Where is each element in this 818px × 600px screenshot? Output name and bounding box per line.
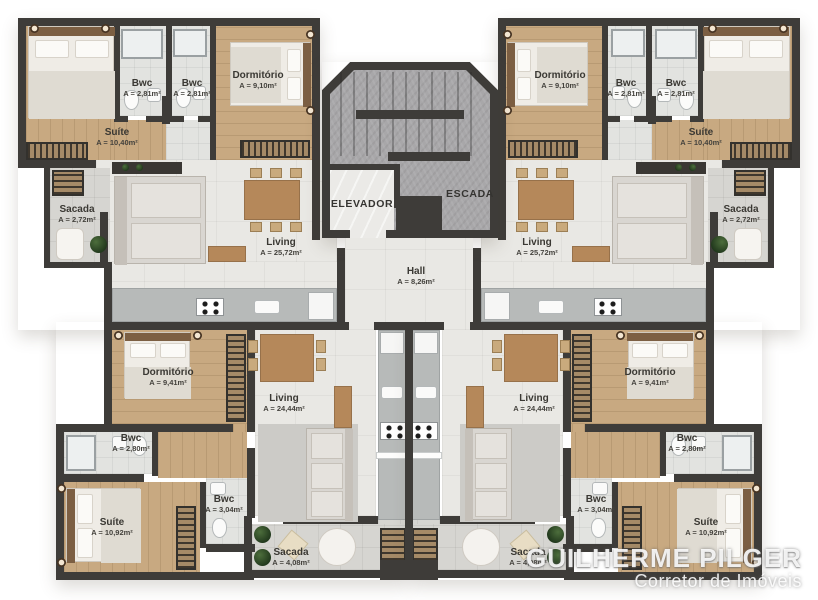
label-escada: ESCADA xyxy=(446,188,494,200)
planter-box xyxy=(380,560,438,580)
room-area: A = 2,80m² xyxy=(112,444,149,453)
watermark-line1: GUILHERME PILGER xyxy=(526,545,802,571)
console-table xyxy=(572,246,610,262)
wall xyxy=(706,262,714,330)
shower xyxy=(611,29,645,57)
wall xyxy=(563,322,571,432)
dining-chair xyxy=(556,222,568,232)
dining-table xyxy=(504,334,558,382)
room-area: A = 24,44m² xyxy=(263,404,305,413)
room-label-living: LivingA = 25,72m² xyxy=(260,237,302,257)
dining-chair xyxy=(560,340,570,353)
dining-chair xyxy=(516,222,528,232)
shower xyxy=(722,435,752,471)
room-name: Bwc xyxy=(123,78,160,90)
room-name: Hall xyxy=(397,266,434,278)
room-label-dormitorio: DormitórioA = 9,10m² xyxy=(534,70,585,90)
cooktop xyxy=(412,422,438,440)
room-name: Sacada xyxy=(272,547,309,559)
room-label-suite: SuíteA = 10,40m² xyxy=(96,127,138,147)
wall-lamp-icon xyxy=(695,331,704,340)
stair-landing xyxy=(356,110,464,119)
room-name: Living xyxy=(513,393,555,405)
wall xyxy=(722,160,800,168)
room-label-sacada: SacadaA = 2,72m² xyxy=(58,204,95,224)
wall xyxy=(602,120,608,160)
room-area: A = 2,80m² xyxy=(668,444,705,453)
watermark: GUILHERME PILGER Corretor de Imóveis xyxy=(526,545,802,590)
room-label-bwc: BwcA = 2,80m² xyxy=(668,433,705,453)
kitchen-shelf xyxy=(410,452,442,459)
wall-lamp-icon xyxy=(503,106,512,115)
lounge-chair xyxy=(734,228,762,260)
room-label-bwc: BwcA = 2,81m² xyxy=(607,78,644,98)
room-name: Bwc xyxy=(577,494,614,506)
toilet xyxy=(591,518,606,538)
sofa-back xyxy=(691,177,703,265)
room-name: Suíte xyxy=(91,517,133,529)
louver-panel xyxy=(412,528,438,562)
room-area: A = 25,72m² xyxy=(516,248,558,257)
room-name: Bwc xyxy=(668,433,705,445)
sofa-cushion xyxy=(617,183,687,218)
wall-lamp-icon xyxy=(503,30,512,39)
pillow xyxy=(749,40,783,58)
room-area: A = 2,81m² xyxy=(607,89,644,98)
room-name: Suíte xyxy=(680,127,722,139)
room-area: A = 25,72m² xyxy=(260,248,302,257)
sofa-cushion xyxy=(475,463,507,489)
wall-lamp-icon xyxy=(752,484,761,493)
floor-plan: SuíteA = 10,40m² BwcA = 2,81m² BwcA = 2,… xyxy=(0,0,818,600)
wall xyxy=(634,116,672,122)
room-area: A = 24,44m² xyxy=(513,404,555,413)
kitchen-sink xyxy=(538,300,564,314)
room-label-bwc: BwcA = 3,04m² xyxy=(577,494,614,514)
wall xyxy=(386,230,434,238)
wall xyxy=(473,248,481,330)
room-area: A = 9,41m² xyxy=(624,378,675,387)
wall xyxy=(690,116,704,122)
dining-chair xyxy=(536,168,548,178)
wall xyxy=(330,164,394,170)
room-area: A = 10,40m² xyxy=(96,138,138,147)
room-name: Sacada xyxy=(58,204,95,216)
room-area: A = 10,92m² xyxy=(685,528,727,537)
wall-lamp-icon xyxy=(616,331,625,340)
corridor-floor xyxy=(571,432,660,478)
room-label-bwc: BwcA = 2,80m² xyxy=(112,433,149,453)
wall-lamp-icon xyxy=(708,24,717,33)
pillow xyxy=(517,77,531,100)
room-name: Suíte xyxy=(685,517,727,529)
wall xyxy=(563,448,571,518)
wall xyxy=(405,322,413,580)
bed xyxy=(704,26,790,118)
room-name: Dormitório xyxy=(534,70,585,82)
pillow xyxy=(725,494,741,524)
fridge xyxy=(484,292,510,320)
room-name: Bwc xyxy=(173,78,210,90)
plant xyxy=(711,236,728,253)
room-name: Bwc xyxy=(657,78,694,90)
room-area: A = 9,10m² xyxy=(232,81,283,90)
shower xyxy=(655,29,697,59)
room-label-bwc: BwcA = 2,81m² xyxy=(123,78,160,98)
room-label-bwc: BwcA = 2,81m² xyxy=(657,78,694,98)
balcony-table xyxy=(462,528,500,566)
room-name: Living xyxy=(516,237,558,249)
room-name: Suíte xyxy=(96,127,138,139)
dining-chair xyxy=(492,340,502,353)
room-area: A = 2,81m² xyxy=(173,89,210,98)
wall xyxy=(464,230,498,238)
room-label-suite: SuíteA = 10,92m² xyxy=(685,517,727,537)
wall-lamp-icon xyxy=(779,24,788,33)
label-elevador: ELEVADOR xyxy=(331,198,393,210)
room-name: Sacada xyxy=(722,204,759,216)
dining-chair xyxy=(556,168,568,178)
room-label-dormitorio: DormitórioA = 9,41m² xyxy=(142,367,193,387)
wall xyxy=(674,474,754,482)
room-name: Dormitório xyxy=(232,70,283,82)
room-name: Living xyxy=(260,237,302,249)
room-label-dormitorio: DormitórioA = 9,41m² xyxy=(624,367,675,387)
cooktop xyxy=(594,298,622,316)
wall xyxy=(322,230,350,238)
room-area: A = 2,72m² xyxy=(722,215,759,224)
elevator-shaft xyxy=(396,196,442,230)
room-area: A = 2,72m² xyxy=(58,215,95,224)
pillow xyxy=(662,343,688,358)
room-label-bwc: BwcA = 2,81m² xyxy=(173,78,210,98)
room-label-sacada: SacadaA = 2,72m² xyxy=(722,204,759,224)
dining-chair xyxy=(492,358,502,371)
room-label-sacada: SacadaA = 4,08m² xyxy=(272,547,309,567)
room-label-living: LivingA = 25,72m² xyxy=(516,237,558,257)
room-area: A = 3,04m² xyxy=(205,505,242,514)
room-area: A = 9,10m² xyxy=(534,81,585,90)
room-label-living: LivingA = 24,44m² xyxy=(263,393,305,413)
room-label-suite: SuíteA = 10,40m² xyxy=(680,127,722,147)
headboard xyxy=(627,333,693,341)
sofa-cushion xyxy=(475,433,507,459)
room-label-hall: HallA = 8,26m² xyxy=(397,266,434,286)
room-name: Bwc xyxy=(112,433,149,445)
dining-chair xyxy=(560,358,570,371)
room-name: Dormitório xyxy=(142,367,193,379)
room-area: A = 2,81m² xyxy=(123,89,160,98)
dining-chair xyxy=(536,222,548,232)
room-area: A = 2,81m² xyxy=(657,89,694,98)
sofa-cushion xyxy=(475,491,507,517)
dining-chair xyxy=(516,168,528,178)
room-name: Living xyxy=(263,393,305,405)
room-name: Bwc xyxy=(205,494,242,506)
sofa xyxy=(466,428,512,520)
blanket xyxy=(703,71,789,119)
wall xyxy=(768,168,774,268)
pillow xyxy=(632,343,658,358)
bed xyxy=(628,332,694,398)
room-area: A = 10,92m² xyxy=(91,528,133,537)
wall xyxy=(585,424,706,432)
sofa-back xyxy=(465,429,473,521)
dining-table xyxy=(518,180,574,220)
sofa-cushion xyxy=(617,223,687,259)
wall xyxy=(792,18,800,168)
plant xyxy=(675,164,682,171)
room-area: A = 9,41m² xyxy=(142,378,193,387)
wall xyxy=(602,26,608,120)
room-area: A = 4,08m² xyxy=(272,558,309,567)
wardrobe xyxy=(508,140,578,158)
headboard xyxy=(507,43,515,107)
wall xyxy=(498,18,506,240)
room-label-bwc: BwcA = 3,04m² xyxy=(205,494,242,514)
wall xyxy=(498,18,800,26)
watermark-line2: Corretor de Imóveis xyxy=(526,572,802,590)
kitchen-sink xyxy=(415,386,437,399)
wall xyxy=(612,482,618,548)
plant xyxy=(689,164,696,171)
room-label-living: LivingA = 24,44m² xyxy=(513,393,555,413)
room-name: Bwc xyxy=(607,78,644,90)
room-name: Dormitório xyxy=(624,367,675,379)
room-label-suite: SuíteA = 10,92m² xyxy=(91,517,133,537)
pillow xyxy=(709,40,743,58)
wall xyxy=(660,432,666,476)
door-opening xyxy=(571,424,585,432)
corridor-floor xyxy=(602,120,652,160)
room-area: A = 8,26m² xyxy=(397,277,434,286)
room-area: A = 10,40m² xyxy=(680,138,722,147)
wardrobe xyxy=(730,142,792,160)
fridge xyxy=(414,332,438,354)
wall xyxy=(345,322,349,330)
room-area: A = 3,04m² xyxy=(577,505,614,514)
louver-closet xyxy=(734,170,766,196)
wall xyxy=(473,322,714,330)
tv-panel xyxy=(466,386,484,428)
pillow xyxy=(517,49,531,72)
wall xyxy=(706,322,714,430)
room-label-dormitorio: DormitórioA = 9,10m² xyxy=(232,70,283,90)
plant xyxy=(547,526,564,543)
stair-landing xyxy=(388,152,470,161)
wardrobe xyxy=(572,334,592,422)
wall xyxy=(470,322,473,330)
sofa xyxy=(612,176,704,264)
wall xyxy=(646,26,652,116)
